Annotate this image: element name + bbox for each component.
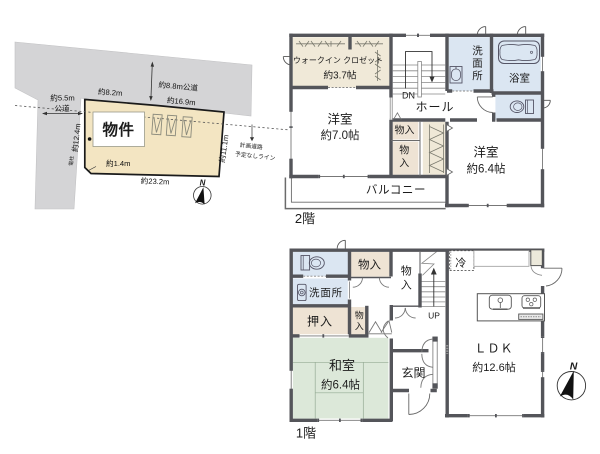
svg-text:冷: 冷 xyxy=(455,257,466,270)
svg-text:ホール: ホール xyxy=(415,100,454,114)
svg-text:押入: 押入 xyxy=(307,315,333,329)
svg-text:浴室: 浴室 xyxy=(509,72,530,85)
svg-text:約3.7帖: 約3.7帖 xyxy=(323,69,356,82)
svg-text:洗面所: 洗面所 xyxy=(309,287,343,299)
svg-text:約6.4帖: 約6.4帖 xyxy=(467,162,506,176)
svg-text:約1.4m: 約1.4m xyxy=(106,158,130,168)
svg-text:ウォークイン クロゼット: ウォークイン クロゼット xyxy=(293,55,383,65)
svg-text:1階: 1階 xyxy=(296,426,316,441)
svg-text:物入: 物入 xyxy=(395,124,415,137)
svg-text:入: 入 xyxy=(401,280,412,292)
svg-text:約12.6帖: 約12.6帖 xyxy=(472,360,515,374)
svg-text:玄関: 玄関 xyxy=(401,365,425,380)
svg-text:洋室: 洋室 xyxy=(473,145,498,160)
svg-text:物: 物 xyxy=(355,310,364,321)
svg-text:電柱: 電柱 xyxy=(68,155,76,166)
svg-text:物入: 物入 xyxy=(358,258,381,272)
svg-text:N: N xyxy=(570,360,578,372)
svg-text:UP: UP xyxy=(428,311,440,321)
svg-text:約8.2m: 約8.2m xyxy=(98,86,123,98)
svg-text:約23.2m: 約23.2m xyxy=(141,176,170,187)
svg-text:約6.4帖: 約6.4帖 xyxy=(321,378,360,392)
svg-text:所: 所 xyxy=(472,70,483,82)
svg-text:入: 入 xyxy=(399,159,409,170)
svg-text:面: 面 xyxy=(472,58,483,70)
svg-text:物件: 物件 xyxy=(102,120,134,139)
svg-text:入: 入 xyxy=(355,322,364,332)
svg-text:バルコニー: バルコニー xyxy=(366,184,426,197)
svg-text:公道: 公道 xyxy=(54,103,70,113)
svg-text:DN: DN xyxy=(402,91,415,101)
svg-text:物: 物 xyxy=(399,144,409,157)
svg-text:2階: 2階 xyxy=(295,211,315,226)
svg-text:和室: 和室 xyxy=(329,358,355,373)
svg-text:洗: 洗 xyxy=(472,45,483,57)
svg-text:洋室: 洋室 xyxy=(327,112,352,127)
svg-text:約7.0帖: 約7.0帖 xyxy=(321,128,360,142)
svg-text:物: 物 xyxy=(401,264,412,278)
svg-text:ＬＤＫ: ＬＤＫ xyxy=(474,342,513,356)
svg-text:約5.5m: 約5.5m xyxy=(50,93,74,103)
